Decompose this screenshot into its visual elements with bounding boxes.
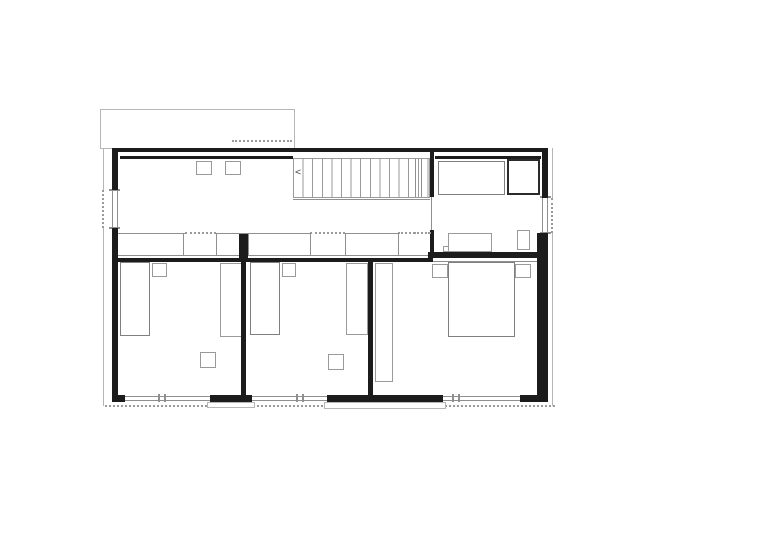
- staircase: [293, 158, 430, 198]
- wardrobe-divider: [398, 233, 399, 256]
- bathroom-south-wall: [428, 252, 542, 258]
- wall-west-upper: [112, 148, 118, 190]
- site-line-right-dashed: [551, 198, 553, 233]
- toilet: [517, 230, 530, 250]
- wall-north: [112, 148, 548, 152]
- wardrobe-band-top-2: [216, 233, 310, 234]
- bedroom3-closet: [375, 263, 393, 382]
- window-south-3: [443, 396, 520, 401]
- site-line-left-upper: [103, 148, 104, 190]
- site-line-left-lower: [103, 228, 104, 406]
- pier-south-1-outer: [207, 402, 255, 408]
- wall-south-pier-1: [210, 395, 252, 402]
- wardrobe-band-dotted-1: [185, 232, 216, 234]
- bedroom3-nightstand-right: [515, 264, 531, 278]
- bedroom2-closet: [346, 263, 368, 335]
- vanity: [448, 233, 492, 252]
- wall-south-center-outer: [324, 402, 446, 409]
- bathroom-west-wall-lower: [430, 230, 434, 258]
- roof-dashed-edge-top: [232, 140, 292, 142]
- hall-skylight-2: [225, 161, 241, 175]
- bedroom2-bed: [250, 262, 280, 335]
- window-south-3-mullion: [458, 394, 460, 402]
- wardrobe-divider: [216, 233, 217, 256]
- wardrobe-band-dotted-2: [310, 232, 345, 234]
- partition-wall-1: [241, 262, 246, 395]
- window-south-1-mullion: [164, 394, 166, 402]
- wardrobe-band-top-1: [118, 233, 185, 234]
- wardrobe-divider: [310, 233, 311, 256]
- stair-direction-arrow-icon: <: [295, 168, 307, 180]
- window-south-2-mullion: [302, 394, 304, 402]
- wall-east-upper: [542, 148, 548, 198]
- wardrobe-band-top-3: [345, 233, 398, 234]
- bedroom1-closet: [220, 263, 242, 337]
- window-south-2-mullion: [296, 394, 298, 402]
- bedroom2-side-table: [328, 354, 344, 370]
- bedroom1-nightstand: [152, 263, 167, 277]
- window-west: [112, 190, 118, 228]
- window-south-2: [252, 396, 327, 401]
- bedroom1-bed: [120, 262, 150, 336]
- site-line-right-lower: [552, 233, 553, 406]
- window-south-3-mullion: [452, 394, 454, 402]
- floor-plan-canvas: <: [0, 0, 780, 551]
- wall-east-lower: [537, 233, 548, 402]
- corridor-wall: [118, 258, 433, 262]
- bathroom-west-wall-upper: [430, 148, 434, 197]
- staircase-landing-line: [415, 159, 416, 197]
- bedroom3-bed: [448, 262, 515, 337]
- wardrobe-divider: [345, 233, 346, 256]
- staircase-landing-line: [421, 159, 422, 197]
- site-line-right-upper: [552, 148, 553, 198]
- bathtub: [438, 161, 505, 195]
- wardrobe-divider: [183, 233, 184, 256]
- bedroom3-north-face-line: [433, 261, 537, 262]
- wall-south-corner-right: [520, 395, 548, 402]
- wall-south-center: [327, 395, 443, 402]
- partition-wall-2: [368, 262, 373, 395]
- shower: [507, 159, 540, 195]
- wall-south-corner-left: [112, 395, 125, 402]
- wardrobe-divider: [248, 233, 249, 256]
- hall-inner-north-line: [120, 156, 293, 159]
- bathroom-door-opening-line: [431, 197, 432, 230]
- wardrobe-band-bottom: [118, 255, 433, 256]
- wall-west-lower: [112, 228, 118, 402]
- bath-inner-north-line: [435, 156, 541, 159]
- window-south-1: [125, 396, 210, 401]
- site-line-left-dashed: [102, 190, 104, 228]
- hall-skylight-1: [196, 161, 212, 175]
- bedroom3-nightstand-left: [432, 264, 448, 278]
- bathroom-door-dashed-line: [414, 232, 431, 234]
- bedroom1-side-table: [200, 352, 216, 368]
- roof-outline-upper-floor: [100, 109, 295, 149]
- window-south-1-mullion: [158, 394, 160, 402]
- window-east: [542, 198, 548, 233]
- bedroom2-nightstand: [282, 263, 296, 277]
- staircase-bottom-line: [293, 199, 430, 200]
